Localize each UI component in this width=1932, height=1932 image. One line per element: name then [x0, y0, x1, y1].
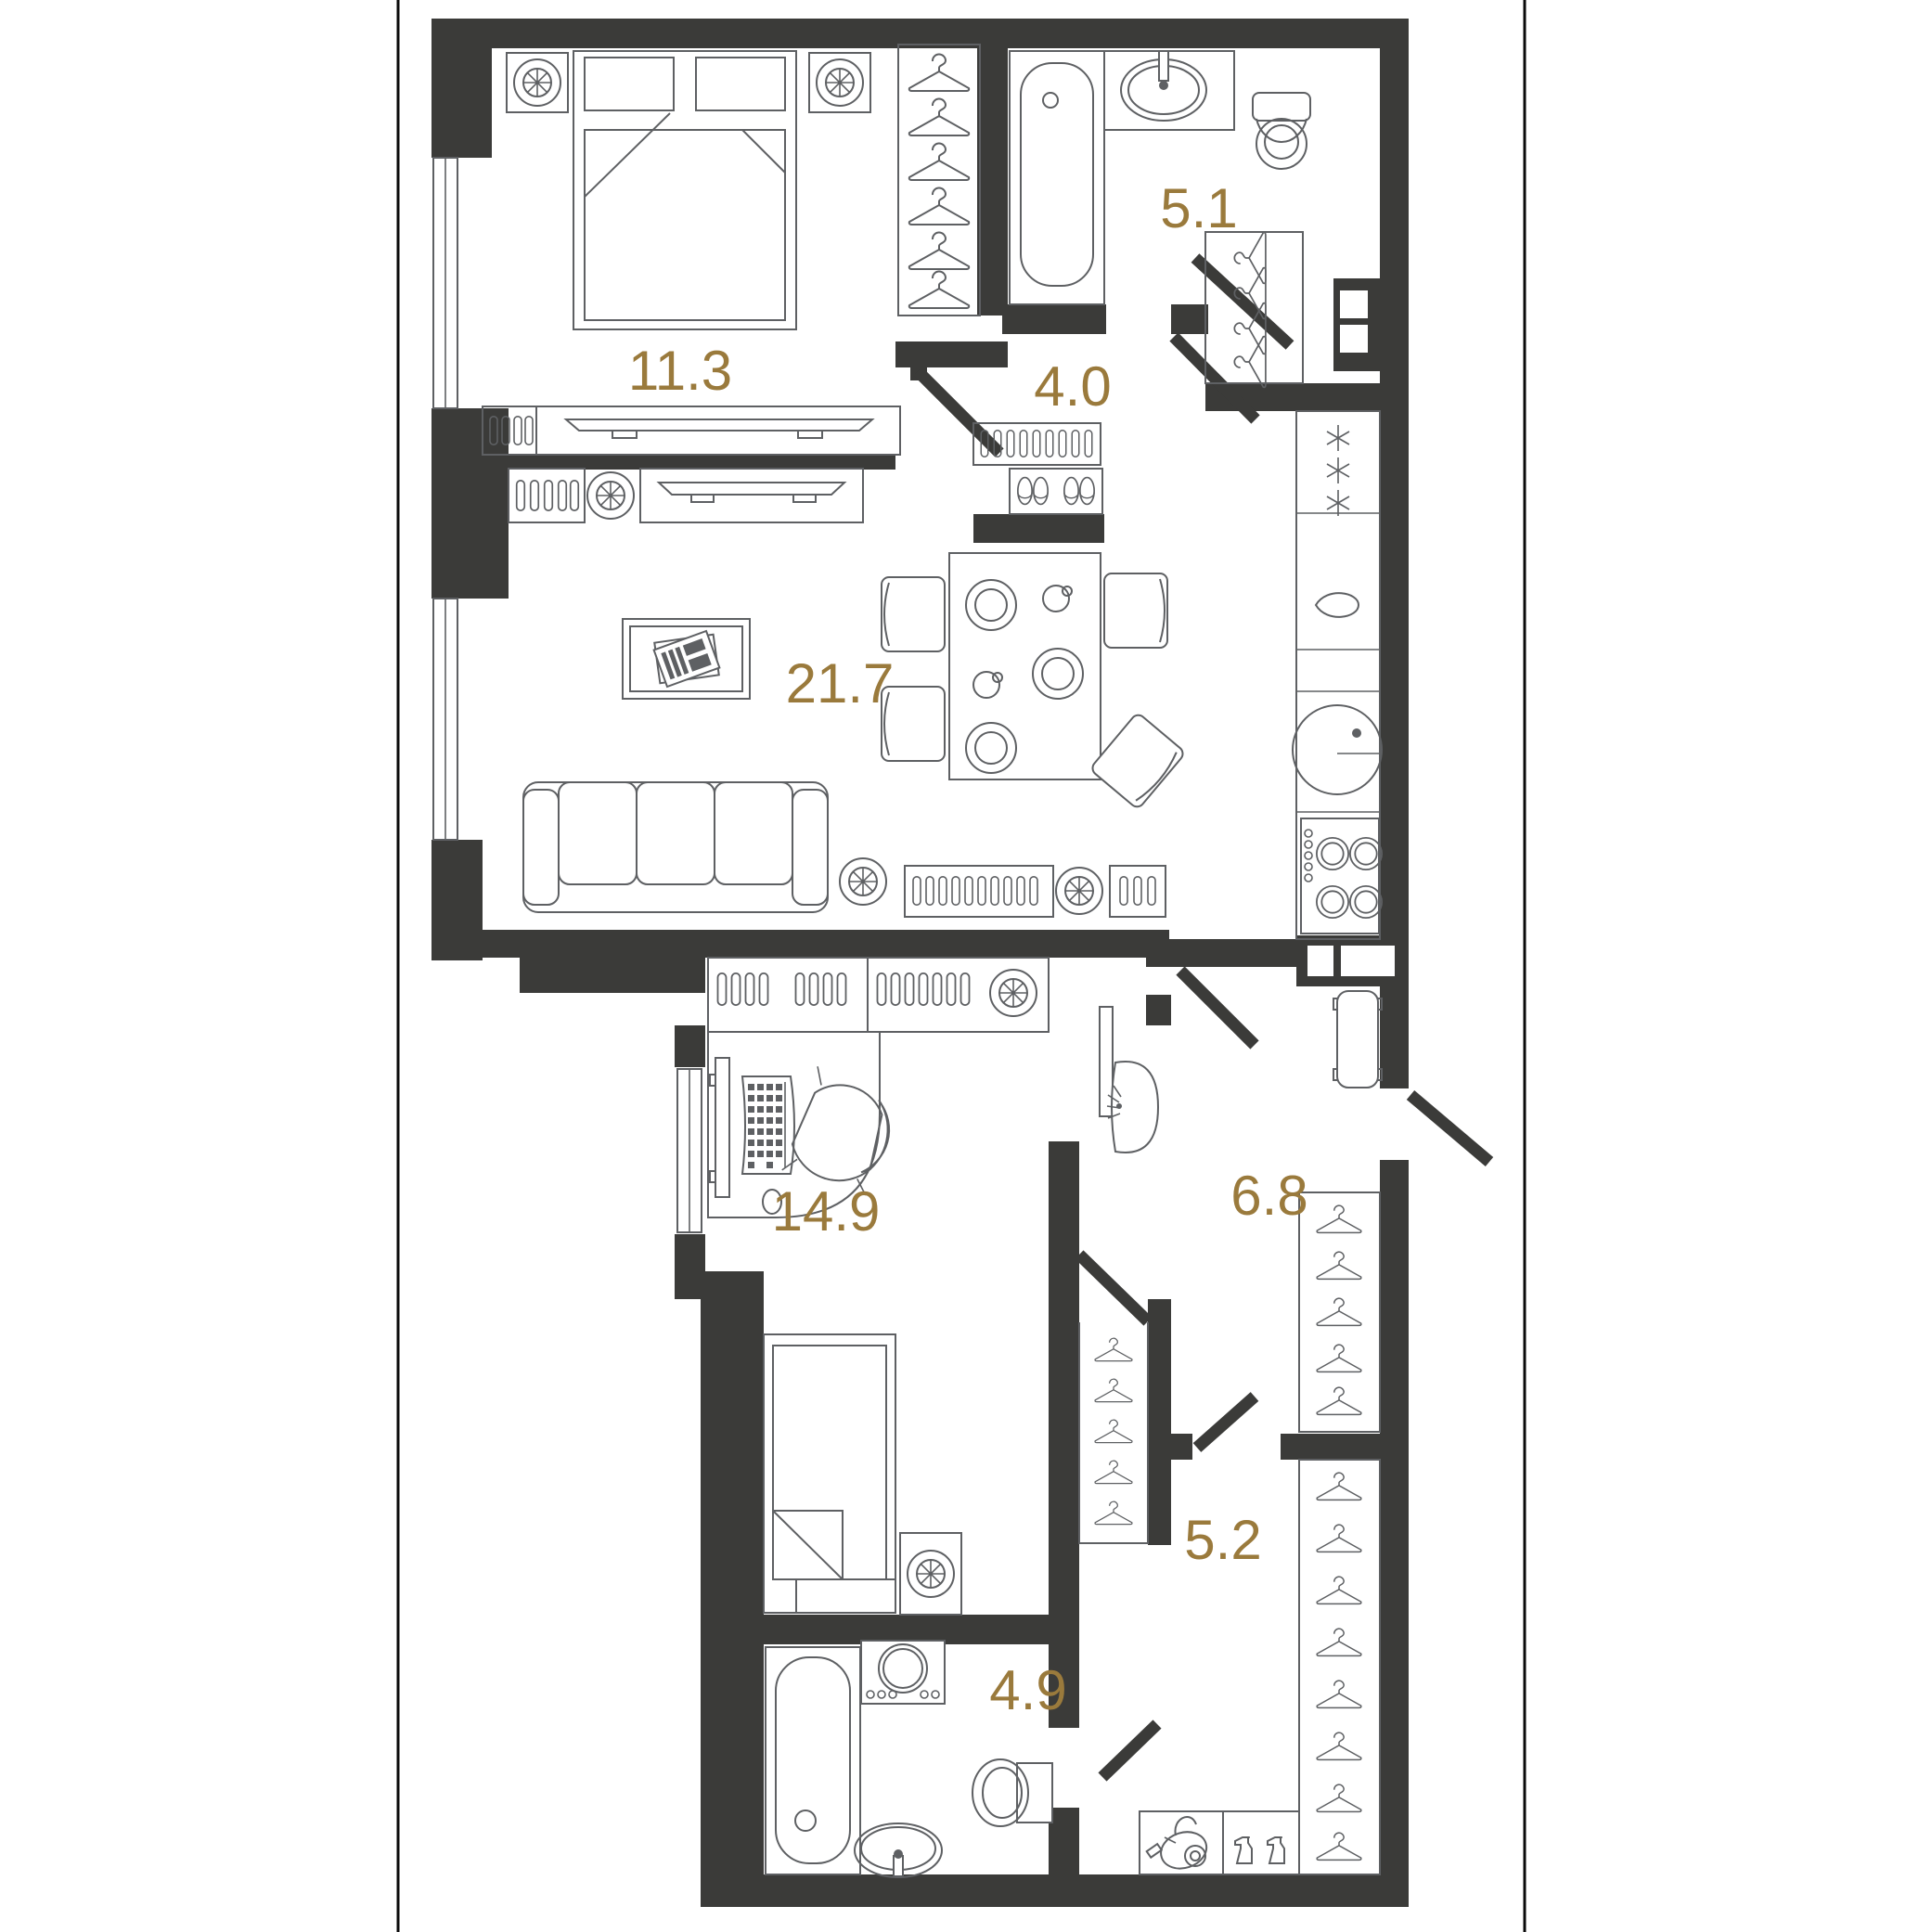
fridge-icon [1327, 425, 1349, 516]
radiators-bedroom2 [708, 958, 1049, 1032]
room-label-bathroom-bottom: 4.9 [989, 1659, 1066, 1721]
keyboard-icon [742, 1076, 794, 1174]
nightstand-right [809, 53, 870, 112]
sink-top [1104, 51, 1234, 130]
room-label-wardrobe: 5.2 [1184, 1509, 1261, 1571]
door-closet-a [1079, 1255, 1148, 1321]
single-bed [764, 1334, 895, 1613]
bench [1333, 991, 1382, 1088]
dresser-tv [536, 406, 900, 455]
washing-machine-bath [861, 1641, 945, 1704]
bathtub-top [1010, 51, 1104, 304]
stove [1301, 818, 1382, 934]
wall-fixture [1107, 1062, 1158, 1153]
room-label-bedroom-2: 14.9 [772, 1180, 881, 1243]
vacuum-icon [1147, 1817, 1212, 1874]
bathtub-bottom [766, 1647, 860, 1874]
room-label-bathroom-top: 5.1 [1160, 177, 1237, 239]
vacuum-shelf [1140, 1811, 1223, 1874]
nightstand-bedroom2 [900, 1533, 961, 1615]
window-living [433, 599, 457, 840]
wardrobe-hangers-bedroom [898, 45, 980, 316]
door-wardrobe-room [1197, 1397, 1255, 1448]
magazine-icon [647, 623, 728, 694]
room-label-hall-top: 4.0 [1034, 355, 1111, 418]
window-bedroom [433, 158, 457, 408]
window-bedroom-2 [677, 1069, 702, 1232]
door-bathroom-bottom [1102, 1724, 1157, 1777]
room-label-living: 21.7 [786, 652, 895, 715]
room-label-bedroom: 11.3 [628, 340, 732, 402]
closet-right-lower-hangers [1299, 1460, 1380, 1874]
toilet-bottom [972, 1759, 1052, 1826]
sofa [523, 782, 828, 912]
spray-shelf [1223, 1811, 1299, 1874]
vent-fan-living [840, 858, 886, 905]
toilet-top [1253, 93, 1310, 169]
living-radiator-bottom [905, 866, 1166, 917]
door-bathroom-top [1195, 258, 1290, 345]
floor-plan: 11.3 5.1 4.0 21.7 14.9 6.8 5.2 4.9 [0, 0, 1932, 1932]
closet-right-upper-hangers [1299, 1192, 1380, 1432]
sink-bottom [855, 1823, 942, 1877]
washing-machine-kitchen [1293, 705, 1382, 794]
door-entrance-outer [1410, 1095, 1489, 1162]
open-door-leaf [1100, 1007, 1113, 1116]
closet-left-hangers [1079, 1322, 1148, 1543]
room-label-hallway: 6.8 [1230, 1165, 1307, 1227]
kitchen-sink [1316, 593, 1359, 617]
door-entrance-inner [1180, 971, 1255, 1045]
slipper-shelf [1010, 469, 1102, 514]
floor-plan-svg: 11.3 5.1 4.0 21.7 14.9 6.8 5.2 4.9 [0, 0, 1932, 1932]
double-bed [573, 51, 796, 329]
dining-table [949, 553, 1101, 779]
nightstand-left [507, 53, 568, 112]
coffee-table [623, 619, 750, 699]
tv-console [640, 469, 863, 522]
door-bedroom [918, 371, 999, 453]
living-radiator-top [509, 469, 634, 522]
